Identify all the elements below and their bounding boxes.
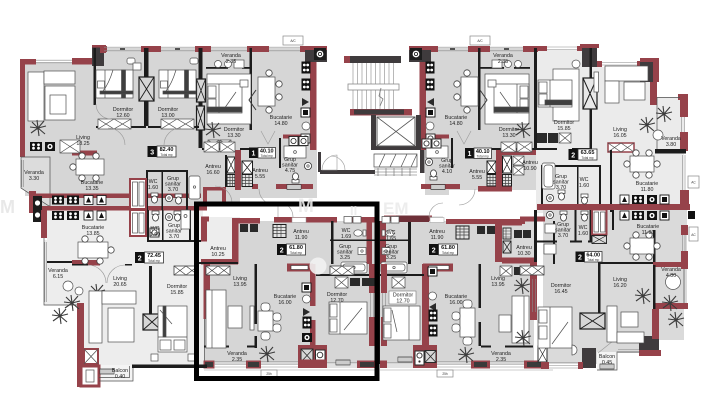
svg-text:WC1.60: WC1.60 xyxy=(148,179,158,191)
svg-text:II: II xyxy=(350,203,357,218)
svg-text:Living13.95: Living13.95 xyxy=(491,276,505,288)
svg-text:Total mp: Total mp xyxy=(477,155,489,159)
svg-text:WC1.60: WC1.60 xyxy=(579,177,589,189)
svg-text:Antreu10.25: Antreu10.25 xyxy=(210,246,226,258)
svg-text:WC1.60: WC1.60 xyxy=(578,225,588,237)
svg-text:2: 2 xyxy=(280,248,284,255)
svg-text:2: 2 xyxy=(432,248,436,255)
svg-text:Antreu16.60: Antreu16.60 xyxy=(205,164,221,176)
svg-text:1: 1 xyxy=(252,151,256,158)
svg-text:Total mp: Total mp xyxy=(160,153,172,157)
svg-text:3: 3 xyxy=(150,150,154,157)
svg-text:Living16.05: Living16.05 xyxy=(613,127,627,139)
svg-text:Total mp: Total mp xyxy=(581,156,593,160)
svg-text:Antreu11.90: Antreu11.90 xyxy=(293,229,309,241)
svg-text:WC1.60: WC1.60 xyxy=(150,226,160,238)
svg-text:EM: EM xyxy=(383,199,409,218)
svg-text:2: 2 xyxy=(578,255,582,262)
svg-text:Total mp: Total mp xyxy=(290,251,302,255)
svg-text:Living20.65: Living20.65 xyxy=(113,276,127,288)
svg-text:WC1.65: WC1.65 xyxy=(386,230,396,242)
svg-text:2: 2 xyxy=(571,153,575,160)
svg-text:A/C: A/C xyxy=(290,39,296,43)
svg-text:Living18.25: Living18.25 xyxy=(76,135,90,147)
svg-text:M: M xyxy=(0,197,15,217)
svg-text:25h: 25h xyxy=(266,372,272,376)
svg-text:AC: AC xyxy=(691,181,696,185)
svg-text:Antreu10.30: Antreu10.30 xyxy=(516,245,532,257)
svg-text:Living13.95: Living13.95 xyxy=(233,276,247,288)
svg-text:2: 2 xyxy=(138,256,142,263)
svg-text:Antreu11.90: Antreu11.90 xyxy=(429,229,445,241)
svg-text:A/C: A/C xyxy=(477,39,483,43)
svg-text:AC: AC xyxy=(691,233,696,237)
svg-text:Total mp: Total mp xyxy=(148,259,160,263)
svg-text:1: 1 xyxy=(468,151,472,158)
svg-text:Living16.20: Living16.20 xyxy=(613,277,627,289)
svg-text:Total mp: Total mp xyxy=(442,251,454,255)
svg-text:WC1.69: WC1.69 xyxy=(341,228,351,240)
svg-text:Antreu10.90: Antreu10.90 xyxy=(522,160,538,172)
svg-text:25h: 25h xyxy=(442,372,448,376)
svg-text:Total mp: Total mp xyxy=(261,154,273,158)
svg-text:M: M xyxy=(298,196,314,217)
svg-text:Total mp: Total mp xyxy=(587,258,599,262)
